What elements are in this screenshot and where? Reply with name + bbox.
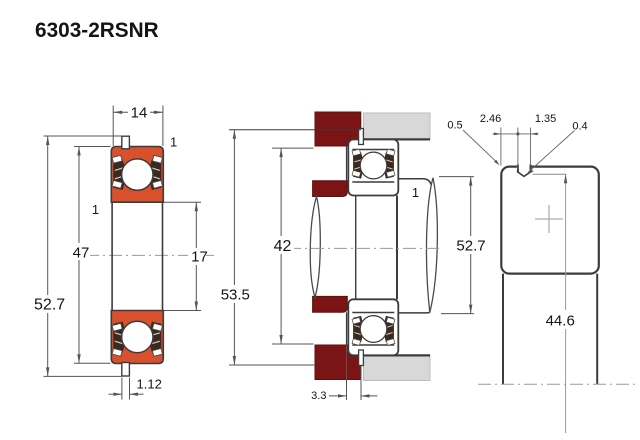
svg-text:1: 1 [170,135,177,150]
svg-text:44.6: 44.6 [546,313,575,330]
svg-text:1: 1 [92,202,99,217]
svg-text:6303-2RSNR: 6303-2RSNR [35,19,159,42]
svg-text:17: 17 [191,249,208,266]
svg-text:47: 47 [73,245,90,262]
svg-text:0.5: 0.5 [447,120,462,132]
svg-text:3.3: 3.3 [311,390,326,402]
svg-text:14: 14 [131,105,148,122]
svg-text:1: 1 [412,185,419,200]
svg-text:42: 42 [274,238,292,255]
svg-text:53.5: 53.5 [221,287,250,304]
svg-text:2.46: 2.46 [480,113,501,125]
svg-text:0.4: 0.4 [572,120,587,132]
svg-text:52.7: 52.7 [456,238,485,255]
svg-text:52.7: 52.7 [34,297,65,314]
svg-text:1.12: 1.12 [137,377,162,392]
svg-text:1.35: 1.35 [535,113,556,125]
